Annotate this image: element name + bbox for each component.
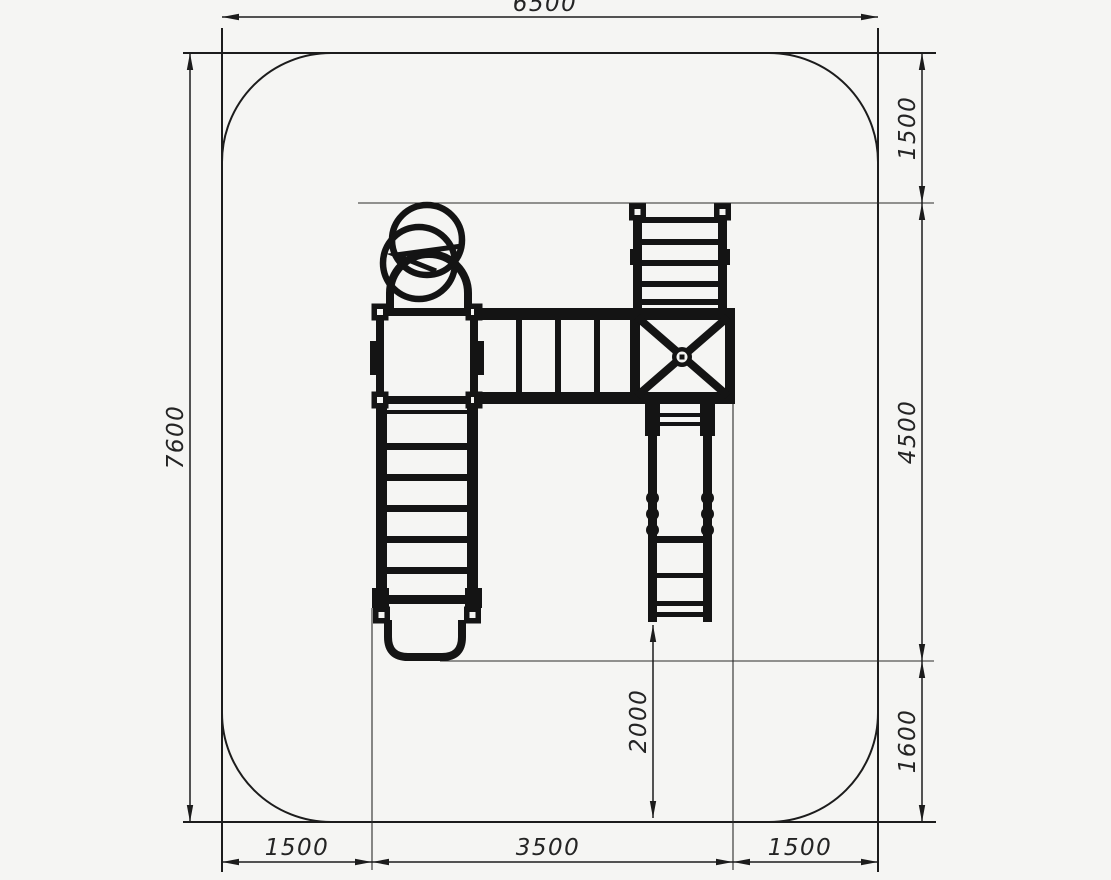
slide-collar-west — [645, 404, 660, 436]
ladder-rung-thin — [387, 410, 467, 414]
tower-left-deck — [380, 312, 474, 400]
slide-collar-east — [700, 404, 715, 436]
rail-bump — [701, 492, 714, 505]
dimension-right-chain: 1500 4500 1600 — [895, 53, 925, 822]
arrowhead-icon — [861, 14, 878, 20]
arrowhead-icon — [222, 14, 239, 20]
rail-bump — [646, 508, 659, 521]
arrowhead-icon — [861, 859, 878, 865]
post-center — [377, 397, 383, 403]
dim-label-clearance: 2000 — [626, 689, 652, 754]
boundary-corner-top-left — [222, 53, 331, 162]
boundary-corner-bottom-left — [222, 713, 331, 822]
ladder-rung — [387, 505, 467, 512]
ladder-rung — [387, 567, 467, 574]
rail-bump — [701, 508, 714, 521]
bridge-rail-south — [474, 392, 735, 404]
arrowhead-icon — [222, 859, 239, 865]
post-center — [635, 209, 641, 215]
ladder-rung — [642, 260, 718, 266]
safety-zone-boundary — [183, 28, 936, 872]
plan-drawing: 6500 7600 1500 4500 1600 1500 3500 1500 — [0, 0, 1111, 880]
ladder-rung — [387, 536, 467, 543]
arrowhead-icon — [919, 644, 925, 661]
boundary-corner-bottom-right — [769, 713, 878, 822]
ladder-rung — [642, 239, 718, 245]
boundary-corner-top-right — [769, 53, 878, 162]
ladder-left-rail-east — [467, 404, 478, 604]
tower-left-panel-east — [470, 341, 484, 375]
arrowhead-icon — [355, 859, 372, 865]
slide-crossbar — [657, 573, 703, 578]
ladder-top — [629, 204, 731, 313]
post-center — [377, 309, 383, 315]
ladder-rung — [642, 217, 718, 223]
dim-label-left-height: 7600 — [163, 405, 189, 470]
dim-label-bottom-middle: 3500 — [516, 835, 581, 861]
slide-crossbar — [657, 422, 703, 426]
plan-drawing-canvas: 6500 7600 1500 4500 1600 1500 3500 1500 — [0, 0, 1111, 880]
arrowhead-icon — [919, 661, 925, 678]
post-center — [379, 612, 385, 618]
tube-rings-and-arch — [383, 205, 468, 310]
post-center — [720, 209, 726, 215]
ladder-bottom-bar — [374, 595, 480, 604]
rail-bump — [646, 524, 659, 537]
dim-label-bottom-right: 1500 — [768, 835, 833, 861]
dim-label-bottom-left: 1500 — [265, 835, 330, 861]
slide-crossbar — [657, 612, 703, 617]
post-center — [470, 612, 476, 618]
dimension-bottom-chain: 1500 3500 1500 — [222, 835, 878, 865]
slide-crossbar — [657, 536, 703, 543]
bridge-rail-north — [474, 308, 735, 320]
dimension-top-width: 6500 — [222, 0, 878, 20]
arrowhead-icon — [716, 859, 733, 865]
arrowhead-icon — [919, 805, 925, 822]
arrowhead-icon — [650, 625, 656, 642]
rail-collar — [630, 249, 635, 265]
slide-crossbar — [657, 601, 703, 606]
cross-center-pin — [680, 355, 685, 360]
ring-upper — [392, 205, 462, 275]
slide-right — [645, 404, 715, 622]
ladder-left — [372, 404, 482, 657]
dim-label-top-width: 6500 — [513, 0, 578, 17]
arrowhead-icon — [372, 859, 389, 865]
bridge-and-cross-tower — [474, 308, 735, 404]
ladder-rung — [387, 443, 467, 450]
dimension-inner-clearance: 2000 — [626, 625, 656, 818]
tower-left — [370, 304, 484, 409]
tower-left-panel-west — [370, 341, 384, 375]
rail-bump — [646, 492, 659, 505]
ladder-rung — [387, 474, 467, 481]
bridge-slat — [516, 318, 522, 394]
rail-collar — [725, 249, 730, 265]
arrowhead-icon — [919, 186, 925, 203]
dimension-left-height: 7600 — [163, 53, 193, 822]
ladder-left-rail-west — [376, 404, 387, 604]
arrowhead-icon — [733, 859, 750, 865]
arrowhead-icon — [650, 801, 656, 818]
ladder-rung — [642, 281, 718, 287]
bridge-slat — [555, 318, 561, 394]
dim-label-right-top: 1500 — [895, 96, 921, 161]
arrowhead-icon — [187, 53, 193, 70]
ladder-rung — [642, 299, 718, 305]
arrowhead-icon — [187, 805, 193, 822]
play-structure — [370, 204, 735, 658]
dim-label-right-middle: 4500 — [895, 400, 921, 465]
bridge-slat — [594, 318, 600, 394]
arrowhead-icon — [919, 203, 925, 220]
dim-label-right-bottom: 1600 — [895, 709, 921, 774]
entry-arch — [388, 620, 462, 657]
arrowhead-icon — [919, 53, 925, 70]
slide-crossbar — [657, 413, 703, 417]
rail-bump — [701, 524, 714, 537]
